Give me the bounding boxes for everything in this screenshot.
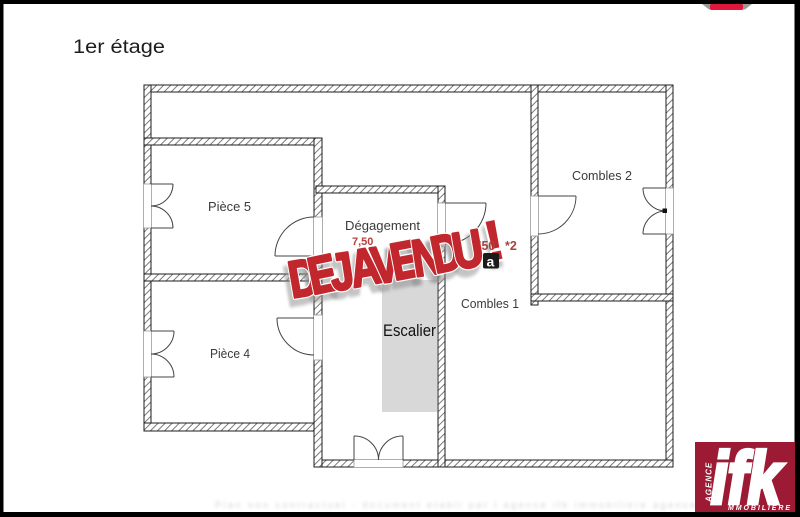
svg-text:Plan non contractuel - documen: Plan non contractuel - document etabli p… [215, 500, 698, 510]
svg-text:Pièce 5: Pièce 5 [208, 199, 251, 214]
svg-text:Combles 2: Combles 2 [572, 168, 632, 183]
svg-text:’50: ’50 [478, 239, 495, 253]
svg-text:M M O B I L I E R E: M M O B I L I E R E [728, 503, 791, 512]
svg-text:*2: *2 [505, 239, 517, 253]
svg-text:Escalier: Escalier [383, 321, 436, 340]
svg-text:1er étage: 1er étage [73, 37, 165, 58]
svg-text:Combles 1: Combles 1 [461, 296, 519, 311]
svg-text:a: a [487, 254, 495, 270]
svg-text:Pièce 4: Pièce 4 [210, 346, 250, 361]
